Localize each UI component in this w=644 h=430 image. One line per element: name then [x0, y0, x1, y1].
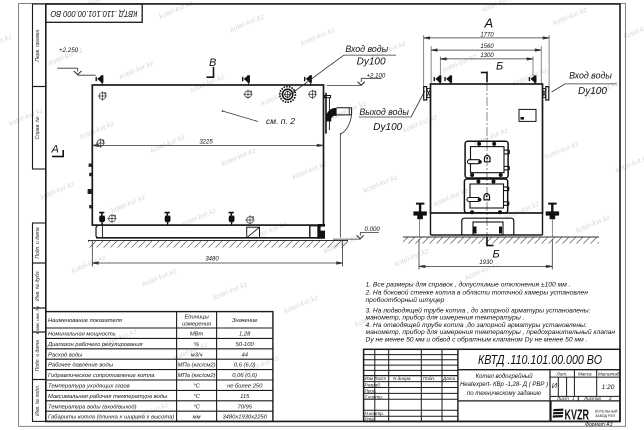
svg-text:kotel-kvr.kz: kotel-kvr.kz [70, 252, 108, 275]
svg-text:Взам. инв. №: Взам. инв. № [35, 306, 40, 334]
svg-text:Единицы: Единицы [184, 315, 209, 321]
svg-text:Dy100: Dy100 [373, 122, 402, 133]
svg-text:kotel-kvr.kz: kotel-kvr.kz [39, 179, 77, 202]
svg-text:1:20: 1:20 [602, 384, 615, 391]
svg-text:2. На боковой стенке котла в: 2. На боковой стенке котла в области топ… [365, 288, 589, 296]
svg-text:kotel-kvr.kz: kotel-kvr.kz [212, 279, 250, 302]
svg-text:Вход воды: Вход воды [569, 70, 612, 80]
svg-text:Dу не менее 50 мм и обвод с о: Dу не менее 50 мм и обвод с обратным кла… [366, 336, 588, 344]
svg-text:1,28: 1,28 [239, 332, 251, 338]
svg-text:1770: 1770 [480, 32, 494, 38]
svg-text:Масса: Масса [578, 372, 592, 377]
svg-text:kotel-kvr.kz: kotel-kvr.kz [574, 212, 612, 235]
svg-text:Справ. №: Справ. № [35, 116, 41, 139]
svg-text:Значение: Значение [232, 318, 258, 324]
svg-text:МПа (кгс/см2): МПа (кгс/см2) [178, 373, 216, 379]
svg-text:Инв. № подл.: Инв. № подл. [35, 385, 41, 416]
svg-text:Инв. № дубл.: Инв. № дубл. [35, 270, 41, 301]
svg-text:Формат А3: Формат А3 [585, 422, 613, 428]
svg-text:0.000: 0.000 [365, 226, 381, 233]
svg-text:Температура уходящих газов: Температура уходящих газов [48, 384, 130, 390]
svg-text:Лист: Лист [556, 396, 569, 401]
svg-text:Масштаб: Масштаб [598, 372, 620, 377]
svg-text:4. На отводящей трубе котла ,: 4. На отводящей трубе котла ,до запорной… [366, 321, 587, 329]
svg-text:3480: 3480 [205, 257, 219, 263]
svg-text:Пров.: Пров. [365, 389, 377, 394]
svg-text:Гидравлическое сопротивление к: Гидравлическое сопротивление котла [48, 373, 155, 379]
svg-text:44: 44 [241, 352, 247, 358]
svg-text:0,6 (6,0): 0,6 (6,0) [234, 363, 256, 369]
svg-text:kotel-kvr.kz: kotel-kvr.kz [141, 266, 179, 289]
svg-text:kotel-kvr.kz: kotel-kvr.kz [0, 32, 14, 55]
svg-text:kotel-kvr.kz: kotel-kvr.kz [362, 172, 400, 195]
svg-text:Номинальная мощность: Номинальная мощность [48, 332, 116, 338]
svg-text:kotel-kvr.kz: kotel-kvr.kz [228, 11, 266, 34]
svg-text:2: 2 [608, 396, 612, 401]
svg-text:kotel-kvr.kz: kotel-kvr.kz [282, 293, 320, 316]
svg-text:3225: 3225 [199, 140, 213, 146]
svg-text:Dy100: Dy100 [578, 86, 607, 97]
svg-text:°С: °С [193, 404, 200, 410]
svg-text:kotel-kvr.kz: kotel-kvr.kz [220, 145, 258, 168]
svg-text:kotel-kvr.kz: kotel-kvr.kz [299, 25, 337, 48]
svg-text:Лит.: Лит. [556, 372, 568, 377]
svg-text:Подп. и дата: Подп. и дата [35, 227, 41, 259]
svg-text:kotel-kvr.kz: kotel-kvr.kz [480, 0, 518, 14]
svg-text:3480х1930х2250: 3480х1930х2250 [222, 415, 267, 421]
svg-text:kotel-kvr.kz: kotel-kvr.kz [189, 72, 227, 95]
svg-text:kotel-kvr.kz: kotel-kvr.kz [149, 132, 187, 155]
svg-text:В: В [209, 57, 216, 69]
svg-text:kotel-kvr.kz: kotel-kvr.kz [410, 0, 448, 1]
svg-text:Максимальная рабочая температу: Максимальная рабочая температура воды [48, 394, 168, 400]
svg-text:50-100: 50-100 [236, 342, 255, 348]
svg-text:Heatexpert- КВр -1,28- Д ( РВР: Heatexpert- КВр -1,28- Д ( РВР ) [460, 382, 548, 388]
svg-text:70/95: 70/95 [237, 404, 252, 410]
svg-text:Подп. и дата: Подп. и дата [35, 340, 41, 372]
svg-text:Вход воды: Вход воды [345, 44, 388, 54]
svg-text:А: А [484, 16, 494, 31]
svg-text:Выход воды: Выход воды [359, 107, 409, 117]
svg-text:Изм Лист: Изм Лист [365, 376, 387, 381]
svg-text:МВт: МВт [190, 332, 204, 338]
svg-text:Рабочее давление воды: Рабочее давление воды [48, 363, 114, 369]
svg-text:И: И [552, 381, 558, 390]
svg-text:МПа (кгс/см2): МПа (кгс/см2) [178, 363, 216, 369]
svg-text:Т.контр.: Т.контр. [365, 395, 384, 400]
svg-text:115: 115 [240, 394, 250, 400]
svg-text:1. Все размеры для справок ,: 1. Все размеры для справок , допустимые … [366, 281, 571, 289]
svg-text:0,06 (0,6): 0,06 (0,6) [232, 373, 257, 379]
svg-text:+2.100: +2.100 [367, 73, 386, 80]
svg-text:kotel-kvr.kz: kotel-kvr.kz [441, 52, 479, 75]
svg-text:N докум.: N докум. [393, 376, 412, 381]
svg-text:м3/ч: м3/ч [191, 352, 203, 358]
svg-text:пробоотборный штуцер: пробоотборный штуцер [366, 296, 445, 304]
svg-text:Котел водогрейный: Котел водогрейный [475, 373, 533, 380]
svg-text:kotel-kvr.kz: kotel-kvr.kz [78, 119, 116, 142]
svg-text:kotel-kvr.kz: kotel-kvr.kz [118, 58, 156, 81]
svg-text:Наименование показателя: Наименование показателя [48, 318, 122, 324]
svg-text:по техническому заданию: по техническому заданию [467, 391, 542, 397]
svg-text:KVZR: KVZR [565, 407, 590, 423]
svg-text:Утв.: Утв. [365, 417, 375, 422]
svg-text:kotel-kvr.kz: kotel-kvr.kz [551, 5, 589, 28]
svg-text:kotel-kvr.kz: kotel-kvr.kz [543, 139, 581, 162]
svg-text:kotel-kvr.kz: kotel-kvr.kz [109, 192, 147, 215]
svg-text:Листов: Листов [583, 396, 601, 401]
svg-text:манометр, прибор для измерения: манометр, прибор для измерения температу… [366, 328, 616, 336]
svg-text:измерения: измерения [182, 322, 211, 328]
svg-text:1560: 1560 [480, 44, 494, 50]
svg-text:Габариты котла (длинна х ширин: Габариты котла (длинна х ширина х высота… [48, 415, 174, 421]
svg-text:А: А [51, 144, 59, 156]
svg-text:Б: Б [496, 61, 503, 73]
svg-text:КВТД .110.101.00.000 ВО: КВТД .110.101.00.000 ВО [478, 353, 602, 367]
svg-text:КОТЕЛЬНЫЙ: КОТЕЛЬНЫЙ [595, 410, 618, 414]
svg-text:Подп.: Подп. [423, 376, 435, 381]
svg-text:не более 250: не более 250 [227, 384, 263, 390]
svg-text:Дата: Дата [442, 376, 456, 381]
svg-text:°С: °С [193, 384, 200, 390]
svg-text:Н.контр.: Н.контр. [365, 411, 384, 416]
svg-text:1300: 1300 [480, 53, 494, 59]
svg-text:мм: мм [193, 415, 201, 421]
svg-text:%: % [194, 342, 199, 348]
svg-text:см. п. 2: см. п. 2 [266, 116, 295, 126]
svg-text:Температура воды (вход/выход): Температура воды (вход/выход) [48, 404, 137, 410]
svg-text:манометр, прибор для измерения: манометр, прибор для измерения температу… [366, 313, 525, 321]
svg-text:kotel-kvr.kz: kotel-kvr.kz [614, 152, 644, 175]
svg-text:Б: Б [493, 249, 500, 261]
svg-text:Dy100: Dy100 [357, 57, 386, 68]
svg-text:3. На подводящей трубе котла: 3. На подводящей трубе котла , до запорн… [366, 306, 591, 314]
svg-text:Расход воды: Расход воды [48, 352, 83, 358]
svg-text:1930: 1930 [479, 260, 493, 266]
svg-text:°С: °С [193, 394, 200, 400]
svg-text:КВТД .110.101.00.000 ВО: КВТД .110.101.00.000 ВО [50, 9, 137, 19]
svg-text:Перв. примен.: Перв. примен. [35, 28, 41, 61]
svg-text:1: 1 [572, 396, 575, 401]
svg-text:Диапазон рабочего регулировани: Диапазон рабочего регулирования [47, 342, 143, 348]
svg-text:+2.250: +2.250 [59, 47, 79, 54]
svg-text:ЗАВОД РЗП: ЗАВОД РЗП [595, 414, 615, 418]
svg-text:Разраб.: Разраб. [365, 383, 382, 388]
